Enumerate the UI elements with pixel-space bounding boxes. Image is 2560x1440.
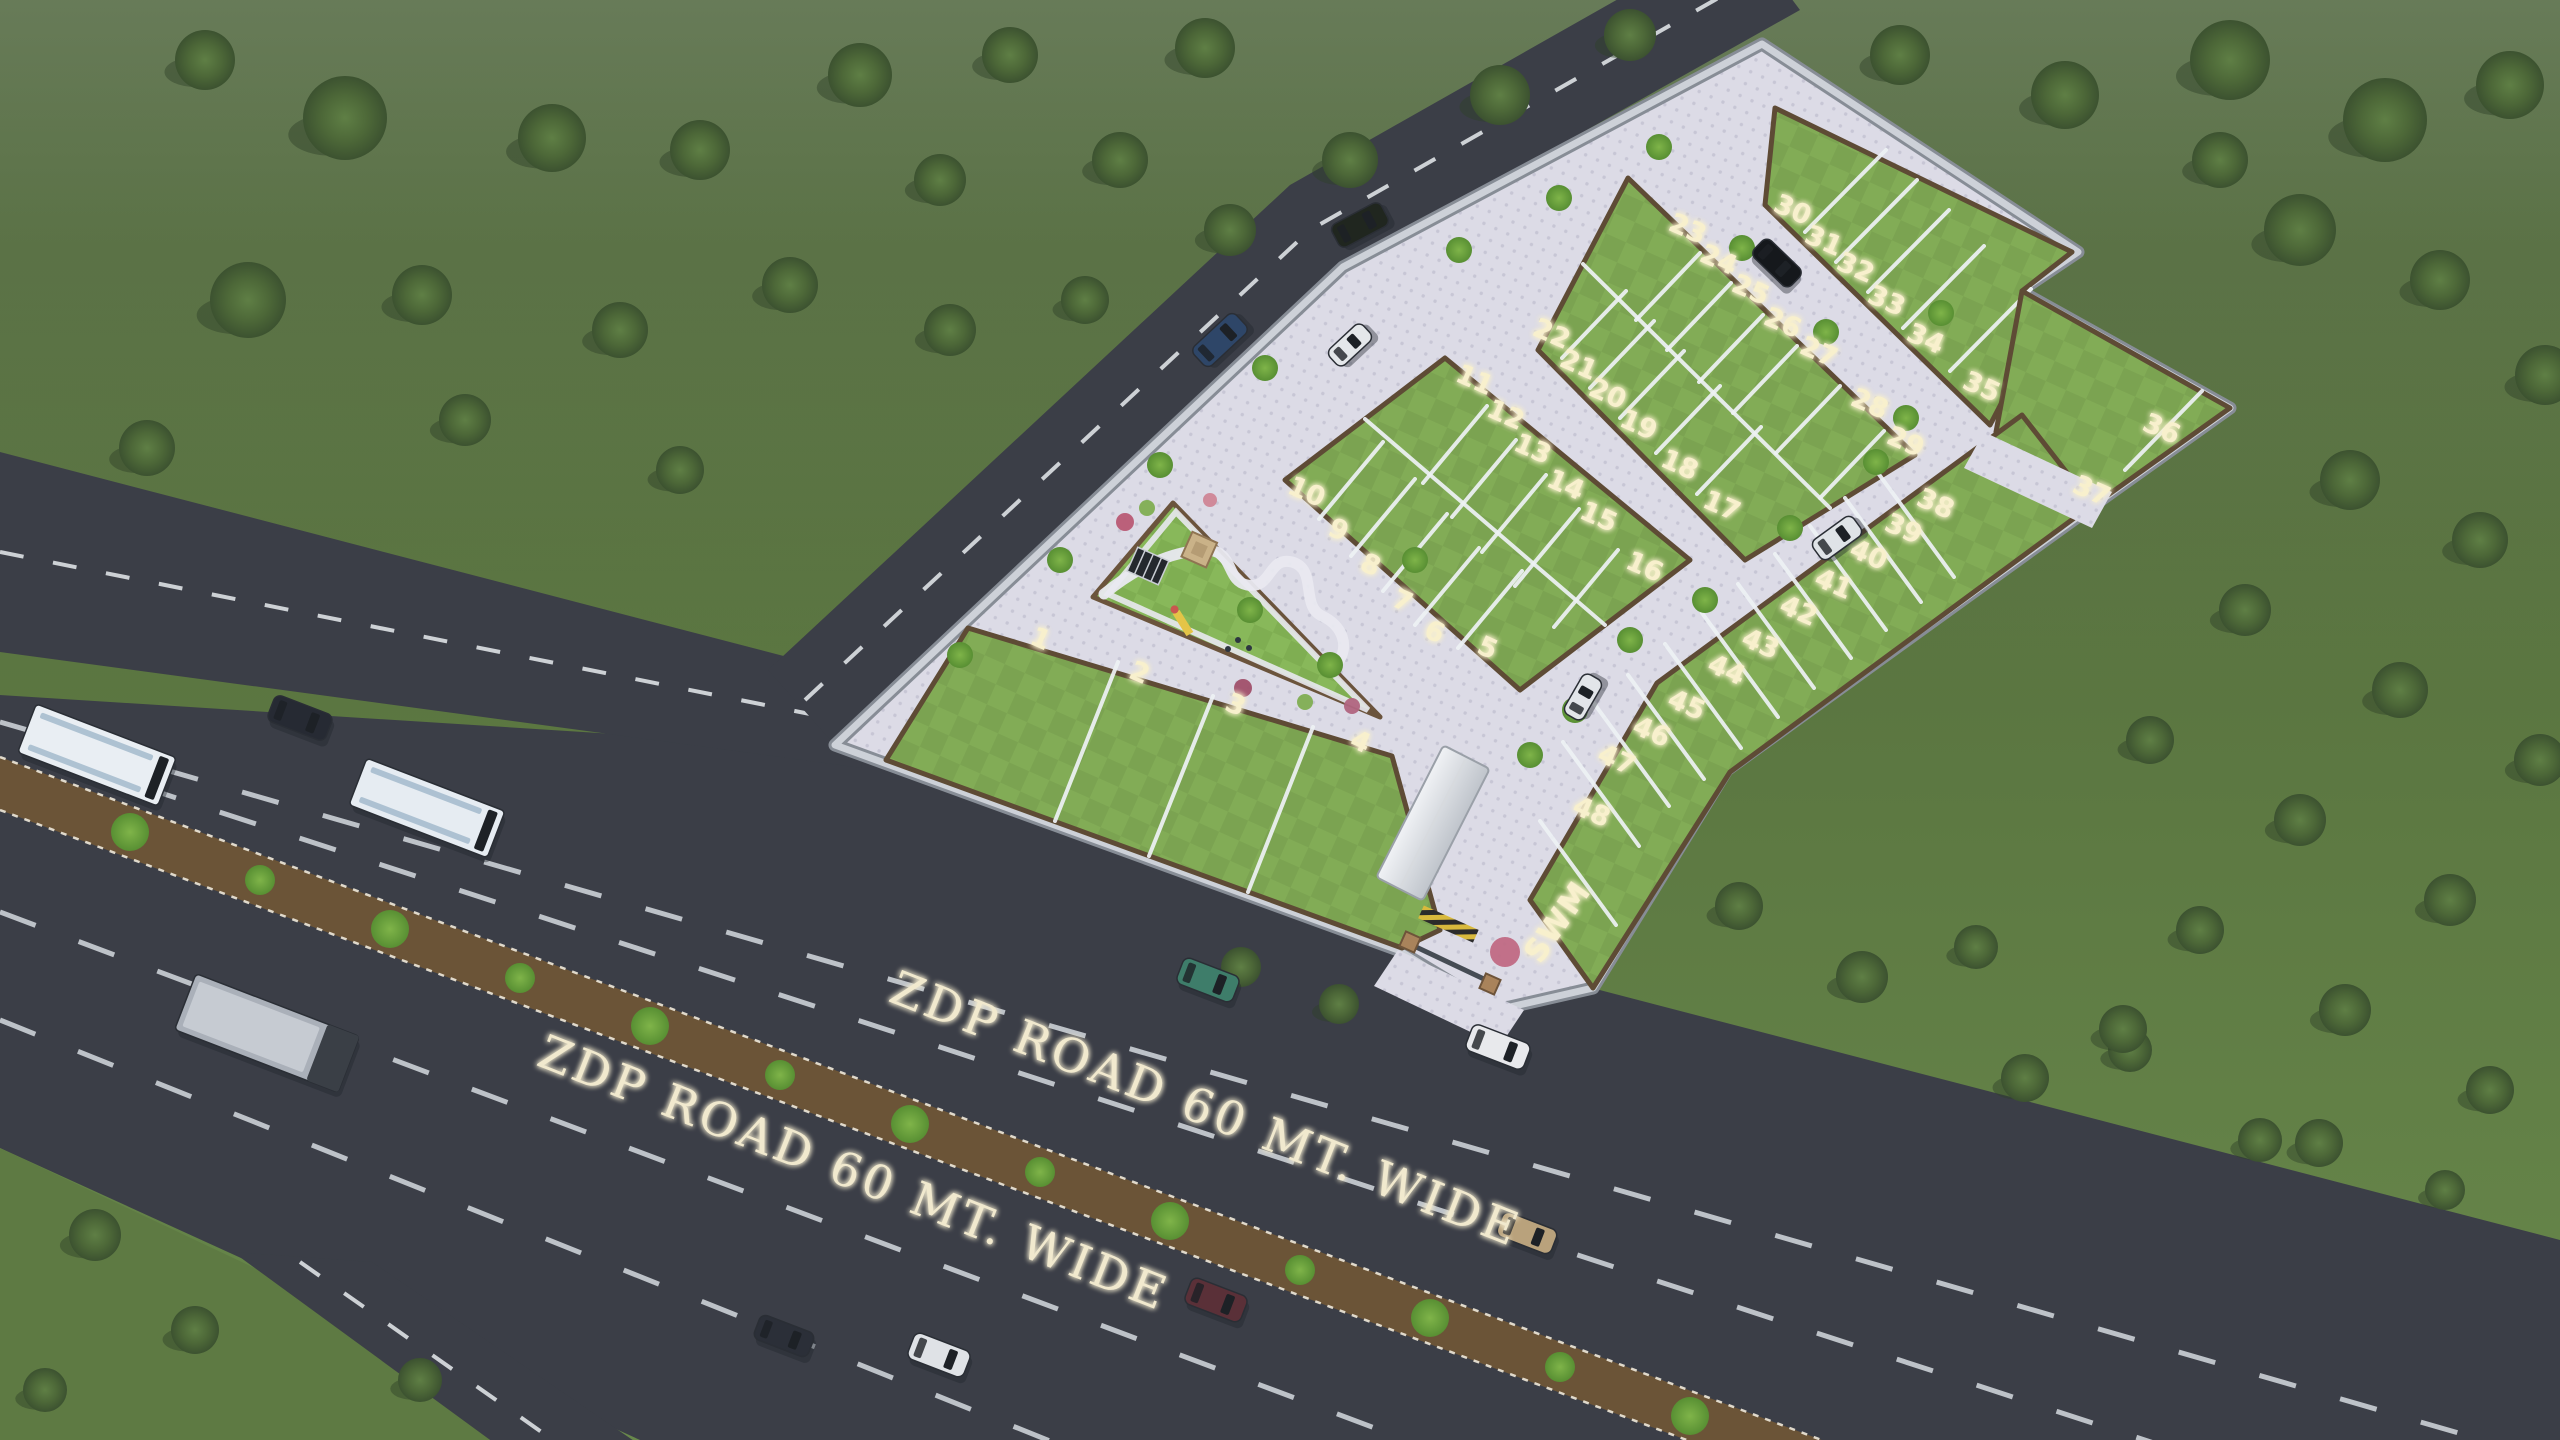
- tree: [1954, 925, 1998, 969]
- bush: [1646, 134, 1672, 160]
- tree: [439, 394, 491, 446]
- tree: [1319, 984, 1359, 1024]
- tree: [1092, 132, 1148, 188]
- bush: [1252, 355, 1278, 381]
- bush: [1777, 515, 1803, 541]
- tree: [518, 104, 586, 172]
- tree: [2319, 984, 2371, 1036]
- median-tree: [1151, 1202, 1189, 1240]
- tree: [1204, 204, 1256, 256]
- tree: [2031, 61, 2099, 129]
- tree: [2343, 78, 2427, 162]
- tree: [69, 1209, 121, 1261]
- tree: [1322, 132, 1378, 188]
- bush: [1928, 300, 1954, 326]
- bush: [1863, 449, 1889, 475]
- tree: [2126, 716, 2174, 764]
- tree: [2425, 1170, 2465, 1210]
- bush: [1446, 237, 1472, 263]
- median-tree: [631, 1007, 669, 1045]
- median-tree: [891, 1105, 929, 1143]
- tree: [210, 262, 286, 338]
- bush: [947, 642, 973, 668]
- tree: [23, 1368, 67, 1412]
- tree: [175, 30, 235, 90]
- flower-bush: [1297, 694, 1313, 710]
- tree: [1715, 882, 1763, 930]
- flower-bush: [1490, 937, 1520, 967]
- median-tree: [1411, 1299, 1449, 1337]
- tree: [1604, 9, 1656, 61]
- median-tree: [765, 1060, 795, 1090]
- tree: [2264, 194, 2336, 266]
- median-tree: [245, 865, 275, 895]
- tree: [2190, 20, 2270, 100]
- tree: [392, 265, 452, 325]
- median-tree: [111, 813, 149, 851]
- tree: [2466, 1066, 2514, 1114]
- tree: [1175, 18, 1235, 78]
- tree: [656, 446, 704, 494]
- flower-bush: [1203, 493, 1217, 507]
- median-tree: [1545, 1352, 1575, 1382]
- tree: [2176, 906, 2224, 954]
- median-tree: [1285, 1255, 1315, 1285]
- tree: [2274, 794, 2326, 846]
- tree: [982, 27, 1038, 83]
- median-tree: [371, 910, 409, 948]
- bush: [1047, 547, 1073, 573]
- flower-bush: [1116, 513, 1134, 531]
- median-tree: [1025, 1157, 1055, 1187]
- bush: [1517, 742, 1543, 768]
- site-plan-svg: ZDP ROAD 60 MT. WIDE ZDP ROAD 60 MT. WID…: [0, 0, 2560, 1440]
- tree: [592, 302, 648, 358]
- bush: [1617, 627, 1643, 653]
- flower-bush: [1139, 500, 1155, 516]
- tree: [2320, 450, 2380, 510]
- median-tree: [1671, 1397, 1709, 1435]
- tree: [2238, 1118, 2282, 1162]
- bush: [1317, 652, 1343, 678]
- bush: [1546, 185, 1572, 211]
- bush: [1402, 547, 1428, 573]
- tree: [171, 1306, 219, 1354]
- tree: [2099, 1005, 2147, 1053]
- tree: [828, 43, 892, 107]
- tree: [1061, 276, 1109, 324]
- tree: [2410, 250, 2470, 310]
- tree: [2372, 662, 2428, 718]
- flower-bush: [1344, 698, 1360, 714]
- tree: [119, 420, 175, 476]
- tree: [1470, 65, 1530, 125]
- tree: [2219, 584, 2271, 636]
- tree: [303, 76, 387, 160]
- tree: [2424, 874, 2476, 926]
- aerial-site-plan-render: ZDP ROAD 60 MT. WIDE ZDP ROAD 60 MT. WID…: [0, 0, 2560, 1440]
- tree: [2295, 1119, 2343, 1167]
- tree: [914, 154, 966, 206]
- tree: [1836, 951, 1888, 1003]
- tree: [670, 120, 730, 180]
- tree: [762, 257, 818, 313]
- tree: [924, 304, 976, 356]
- tree: [2192, 132, 2248, 188]
- bush: [1147, 452, 1173, 478]
- tree: [2001, 1054, 2049, 1102]
- tree: [2476, 51, 2544, 119]
- tree: [2452, 512, 2508, 568]
- bush: [1692, 587, 1718, 613]
- tree: [1870, 25, 1930, 85]
- bush: [1237, 597, 1263, 623]
- tree: [398, 1358, 442, 1402]
- median-tree: [505, 963, 535, 993]
